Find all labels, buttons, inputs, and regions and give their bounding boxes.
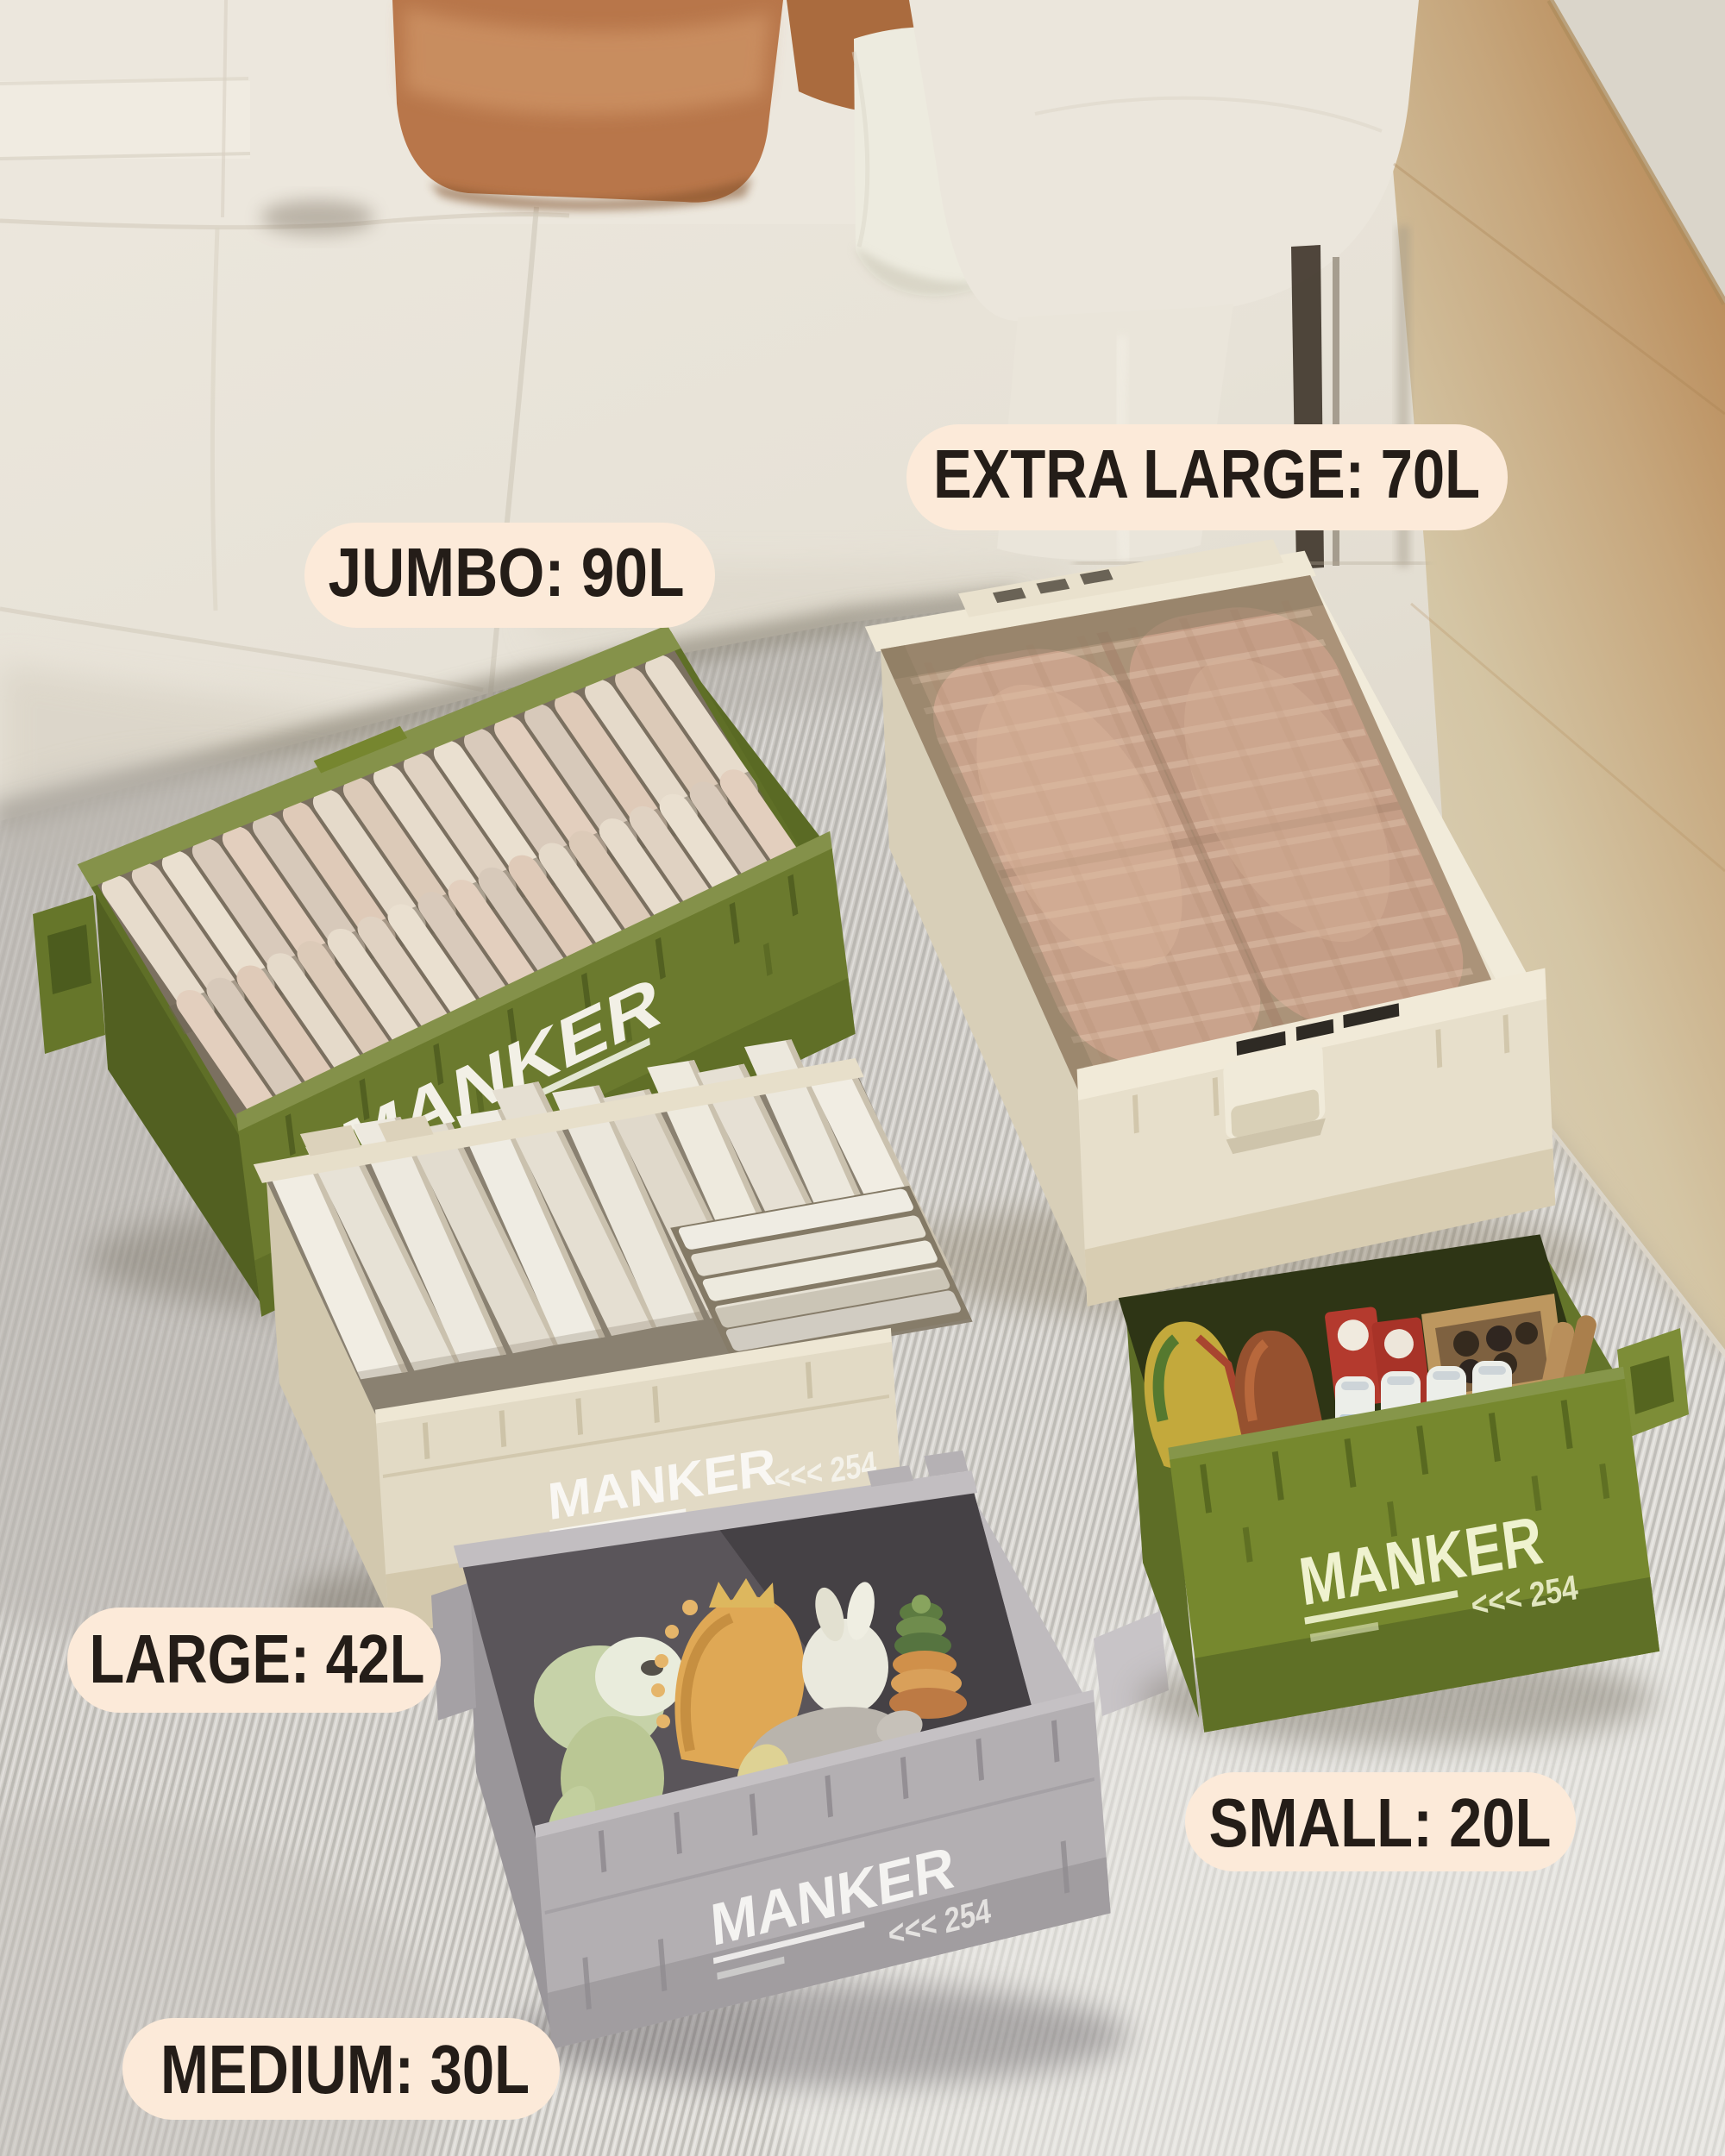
svg-text:MEDIUM: 30L: MEDIUM: 30L	[160, 2031, 530, 2108]
svg-text:EXTRA LARGE: 70L: EXTRA LARGE: 70L	[933, 436, 1480, 512]
svg-text:SMALL: 20L: SMALL: 20L	[1209, 1784, 1552, 1861]
svg-text:LARGE: 42L: LARGE: 42L	[90, 1620, 425, 1697]
svg-text:JUMBO: 90L: JUMBO: 90L	[329, 534, 685, 611]
